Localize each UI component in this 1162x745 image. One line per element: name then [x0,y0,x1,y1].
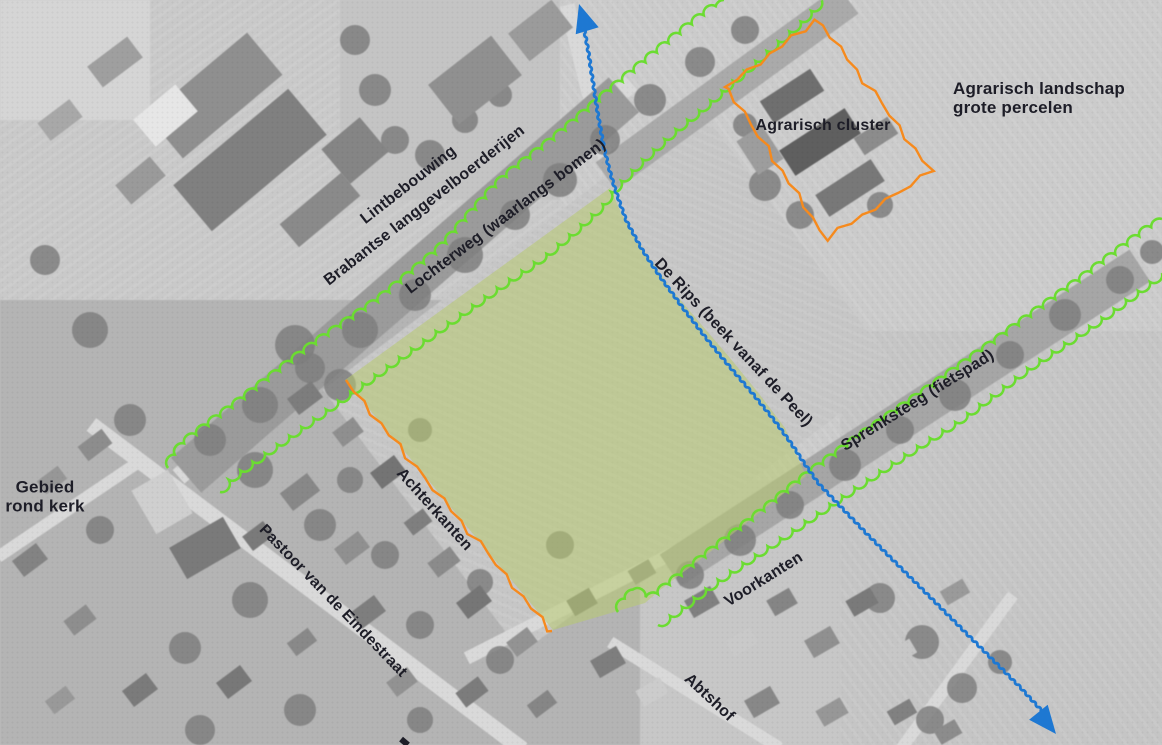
label-gebied-line1: Gebied [5,478,84,497]
label-agrarisch-cluster: Agrarisch cluster [755,116,890,136]
label-agrarisch-landschap: Agrarisch landschap grote percelen [953,80,1125,117]
label-agrarisch-landschap-line1: Agrarisch landschap [953,80,1125,99]
label-gebied-line2: rond kerk [5,497,84,516]
label-agrarisch-cluster-text: Agrarisch cluster [755,116,890,136]
stream-arrow-north [576,4,599,34]
aerial-map-figure: Lintbebouwing Brabantse langgevelboerder… [0,0,1162,745]
plan-area-highlight [345,188,806,630]
label-gebied-rond-kerk: Gebied rond kerk [5,478,84,515]
label-agrarisch-landschap-line2: grote percelen [953,99,1125,118]
stream-arrow-south [1029,705,1056,734]
